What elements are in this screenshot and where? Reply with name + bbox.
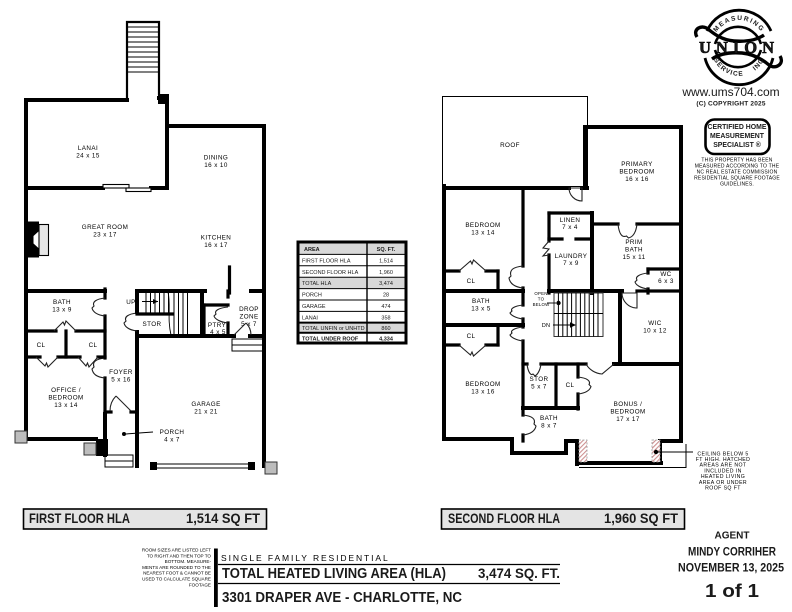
svg-text:AGENT: AGENT (715, 531, 750, 542)
svg-text:1,514 SQ FT: 1,514 SQ FT (186, 510, 260, 526)
svg-text:SECOND FLOOR HLA: SECOND FLOOR HLA (302, 270, 359, 276)
svg-text:DINING16 x 10: DINING16 x 10 (204, 155, 228, 170)
svg-text:CL: CL (467, 333, 476, 340)
svg-text:1,960: 1,960 (379, 270, 393, 276)
svg-text:474: 474 (381, 304, 390, 310)
svg-text:FOYER5 x 16: FOYER5 x 16 (109, 369, 133, 383)
svg-text:ROOF: ROOF (500, 142, 520, 149)
svg-text:BATH8 x 7: BATH8 x 7 (540, 415, 558, 429)
svg-text:LINEN7 x 4: LINEN7 x 4 (560, 217, 581, 231)
svg-text:UNION: UNION (699, 38, 779, 57)
svg-text:FIRST FLOOR HLA: FIRST FLOOR HLA (29, 510, 130, 526)
svg-text:1,960 SQ FT: 1,960 SQ FT (604, 510, 678, 526)
svg-text:358: 358 (381, 315, 390, 321)
svg-text:CL: CL (566, 382, 575, 389)
svg-text:BATH13 x 9: BATH13 x 9 (52, 299, 72, 314)
svg-text:TOTAL HEATED LIVING AREA (HLA): TOTAL HEATED LIVING AREA (HLA) (222, 566, 446, 582)
svg-text:(C) COPYRIGHT 2025: (C) COPYRIGHT 2025 (696, 101, 766, 108)
svg-text:STOR: STOR (143, 321, 162, 328)
svg-text:KITCHEN16 x 17: KITCHEN16 x 17 (201, 235, 231, 250)
svg-text:LANAI24 x 15: LANAI24 x 15 (76, 145, 100, 160)
svg-text:1 of 1: 1 of 1 (705, 581, 759, 601)
svg-text:860: 860 (381, 326, 390, 332)
svg-text:FIRST FLOOR HLA: FIRST FLOOR HLA (302, 258, 351, 264)
svg-text:TOTAL HLA: TOTAL HLA (302, 281, 332, 287)
svg-text:WC6 x 3: WC6 x 3 (658, 271, 674, 285)
svg-text:DN: DN (542, 323, 550, 329)
svg-text:BATH13 x 5: BATH13 x 5 (471, 298, 491, 312)
svg-text:SECOND FLOOR HLA: SECOND FLOOR HLA (448, 510, 560, 526)
svg-text:GARAGE: GARAGE (302, 304, 326, 310)
svg-text:UP: UP (126, 299, 136, 306)
svg-text:LANAI: LANAI (302, 315, 318, 321)
svg-text:STOR5 x 7: STOR5 x 7 (530, 376, 549, 390)
svg-text:MINDY CORRIHER: MINDY CORRIHER (688, 547, 777, 559)
svg-text:3,474 SQ. FT.: 3,474 SQ. FT. (478, 565, 560, 581)
svg-text:CL: CL (467, 278, 476, 285)
svg-text:PTRY4 x 5: PTRY4 x 5 (208, 322, 227, 336)
svg-text:PRIMBATH15 x 11: PRIMBATH15 x 11 (623, 239, 646, 261)
svg-text:AREA: AREA (304, 247, 320, 253)
svg-text:NOVEMBER 13, 2025: NOVEMBER 13, 2025 (678, 563, 785, 575)
svg-text:4,334: 4,334 (379, 336, 394, 342)
svg-text:1,514: 1,514 (379, 258, 393, 264)
svg-text:CERTIFIED HOMEMEASUREMENTSPECI: CERTIFIED HOMEMEASUREMENTSPECIALIST ® (708, 124, 767, 149)
svg-text:DROPZONE5 x 7: DROPZONE5 x 7 (239, 306, 259, 328)
svg-text:3,474: 3,474 (379, 281, 393, 287)
svg-text:TOTAL UNDER ROOF: TOTAL UNDER ROOF (302, 336, 359, 342)
svg-text:TOTAL UNFIN or UNHTD: TOTAL UNFIN or UNHTD (302, 326, 365, 332)
svg-text:ROOM SIZES ARE LISTED LEFTTO R: ROOM SIZES ARE LISTED LEFTTO RIGHT AND T… (142, 548, 212, 588)
svg-text:28: 28 (383, 293, 389, 299)
svg-text:GARAGE21 x 21: GARAGE21 x 21 (191, 401, 220, 416)
svg-text:CL: CL (89, 342, 98, 349)
svg-text:SQ. FT.: SQ. FT. (377, 247, 396, 253)
svg-text:PORCH: PORCH (302, 293, 322, 299)
svg-text:CL: CL (37, 342, 46, 349)
svg-text:www.ums704.com: www.ums704.com (681, 85, 779, 99)
svg-text:3301 DRAPER AVE - CHARLOTTE, N: 3301 DRAPER AVE - CHARLOTTE, NC (222, 590, 462, 606)
svg-text:SINGLE FAMILY RESIDENTIAL: SINGLE FAMILY RESIDENTIAL (221, 553, 390, 563)
